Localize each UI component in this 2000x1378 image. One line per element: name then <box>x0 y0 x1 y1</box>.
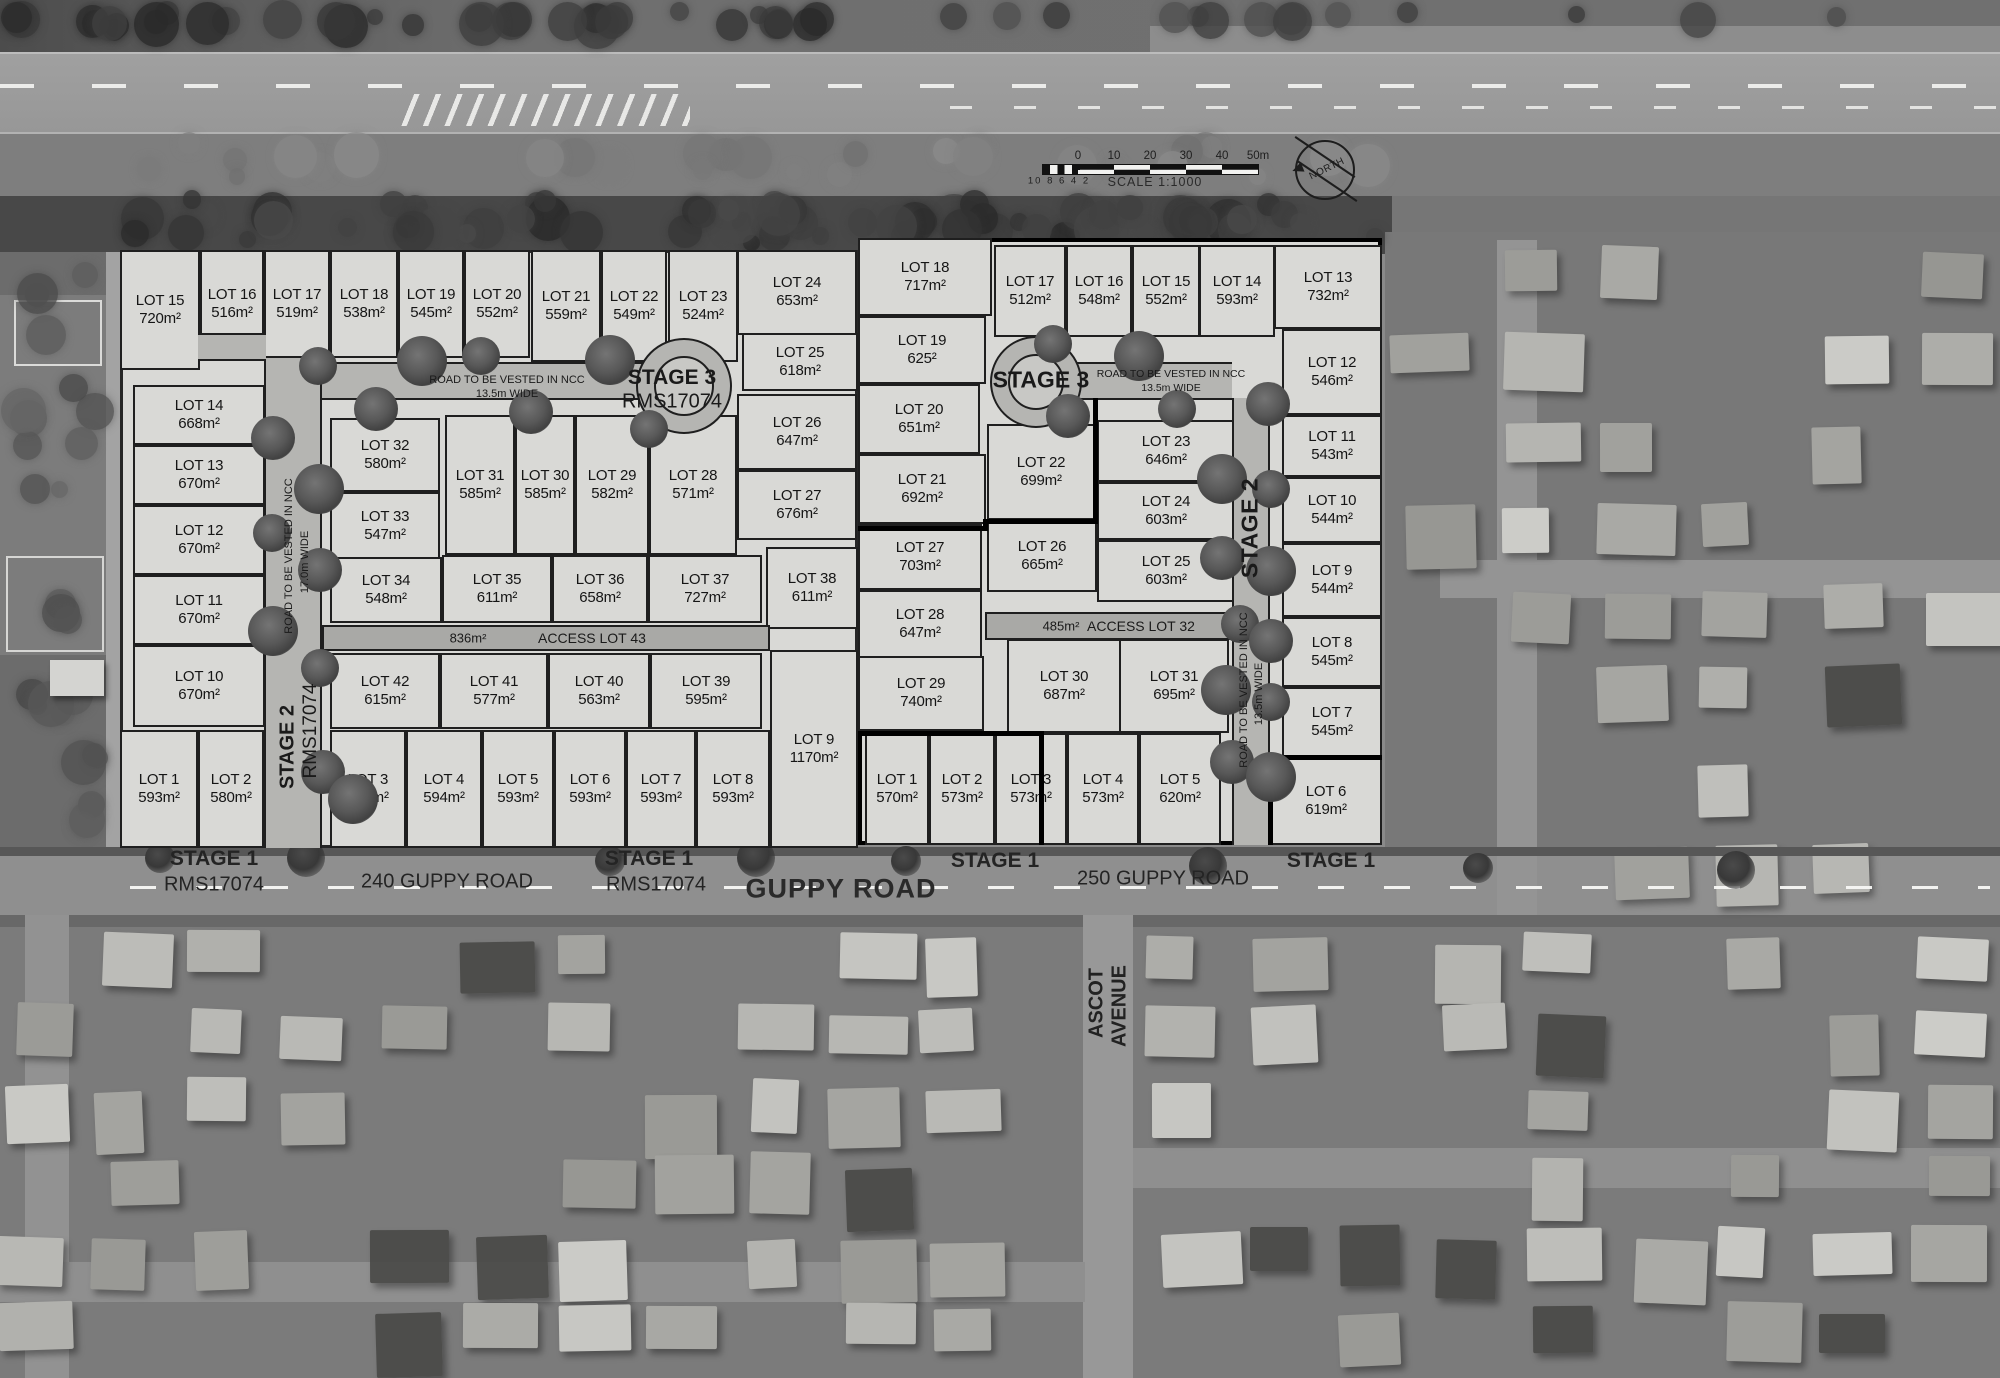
stage-boundary-seg <box>858 526 988 531</box>
stage3-label-250: STAGE 3 <box>993 367 1090 394</box>
lot-240-40: LOT 40563m² <box>548 653 650 729</box>
lot-label: LOT 14668m² <box>175 397 224 434</box>
scale-tick-20: 20 <box>1144 150 1157 162</box>
lot-label: LOT 27676m² <box>773 487 822 524</box>
aerial-house <box>1600 245 1659 300</box>
lot-label: LOT 17519m² <box>273 286 322 323</box>
aerial-house <box>1812 1232 1892 1276</box>
lot-label: LOT 28571m² <box>669 467 718 504</box>
lot-label: LOT 11543m² <box>1308 428 1355 465</box>
lot-250-29: LOT 29740m² <box>858 656 984 731</box>
vegetation <box>688 199 716 227</box>
lot-240-34: LOT 34548m² <box>330 557 442 623</box>
aerial-house <box>1435 1239 1497 1300</box>
vegetation <box>59 374 87 402</box>
lot-label: LOT 37727m² <box>681 571 730 608</box>
lot-label: LOT 23646m² <box>1142 433 1191 470</box>
aerial-house <box>1405 504 1476 569</box>
lot-250-14: LOT 14593m² <box>1199 245 1275 337</box>
street-tree <box>1034 325 1072 363</box>
stage-boundary-seg <box>985 519 1097 524</box>
aerial-house <box>1730 1155 1778 1198</box>
aerial-house <box>1502 508 1549 554</box>
scale-bar-minor <box>1042 164 1080 175</box>
lot-240-8: LOT 8593m² <box>696 730 770 848</box>
lot-label: LOT 30585m² <box>521 467 570 504</box>
aerial-house <box>1698 666 1747 708</box>
stage2-label-250: STAGE 2 <box>1237 478 1264 578</box>
aerial-house <box>1506 422 1581 462</box>
scale-tick-40: 40 <box>1216 150 1229 162</box>
aerial-house <box>1339 1225 1400 1287</box>
aerial-house <box>476 1235 549 1301</box>
aerial-house <box>1253 937 1330 992</box>
lot-label: LOT 39595m² <box>682 673 731 710</box>
aerial-house <box>929 1242 1005 1298</box>
lot-label: LOT 29740m² <box>897 675 946 712</box>
lot-240-12: LOT 12670m² <box>133 505 265 575</box>
vegetation <box>134 2 179 47</box>
lot-240-39: LOT 39595m² <box>650 653 762 729</box>
vegetation <box>670 2 689 21</box>
aerial-house <box>1526 1227 1601 1281</box>
aerial-house <box>828 1087 902 1149</box>
road-width-label-250: 13.5m WIDE <box>1141 382 1201 394</box>
aerial-house <box>1825 663 1902 727</box>
ascot-avenue-label-2: AVENUE <box>1109 965 1132 1047</box>
aerial-house <box>558 1240 628 1302</box>
lot-label: LOT 26665m² <box>1018 538 1067 575</box>
lot-label: LOT 42615m² <box>361 673 410 710</box>
lot-240-2: LOT 2580m² <box>198 730 264 848</box>
vegetation <box>1159 2 1190 33</box>
aerial-house <box>1634 1238 1709 1305</box>
lot-250-26: LOT 26665m² <box>987 520 1097 592</box>
vegetation <box>993 2 1021 30</box>
lot-label: LOT 19545m² <box>407 286 456 323</box>
aerial-house <box>1527 1090 1589 1131</box>
lot-240-14: LOT 14668m² <box>133 385 265 445</box>
vegetation <box>526 139 564 177</box>
road-vested-label-240: ROAD TO BE VESTED IN NCC <box>429 374 584 386</box>
aerial-house <box>0 1301 74 1351</box>
aerial-house <box>934 1309 991 1352</box>
lot-label: LOT 8545m² <box>1311 634 1353 671</box>
vegetation <box>274 135 317 178</box>
lot-label: LOT 11670m² <box>175 592 222 629</box>
highway-chevrons <box>398 94 690 126</box>
road-stub-240 <box>198 333 266 361</box>
lot-label: LOT 17512m² <box>1006 273 1055 310</box>
aerial-subdivision-plan: STAGE 3 RMS17074 ROAD TO BE VESTED IN NC… <box>0 0 2000 1378</box>
aerial-house <box>1145 1005 1216 1057</box>
lot-label: LOT 24653m² <box>773 274 822 311</box>
lot-250-3: LOT 3573m² <box>995 733 1067 845</box>
aerial-house <box>279 1016 343 1061</box>
aerial-house <box>1605 594 1672 640</box>
lot-250-2: LOT 2573m² <box>929 733 995 845</box>
verge-tree <box>1717 851 1755 889</box>
stage3-ref-240: RMS17074 <box>622 391 722 414</box>
lot-label: LOT 26647m² <box>773 414 822 451</box>
lot-label: LOT 13670m² <box>175 457 224 494</box>
lot-label: LOT 10544m² <box>1308 492 1357 529</box>
aerial-house <box>1826 1089 1899 1152</box>
lot-label: LOT 7593m² <box>640 771 682 808</box>
lot-250-17: LOT 17512m² <box>994 245 1066 337</box>
road-width-label-240: 13.5m WIDE <box>476 388 538 400</box>
aerial-house <box>548 1003 611 1052</box>
lot-250-4: LOT 4573m² <box>1067 733 1139 845</box>
clubhouse-roof <box>50 660 104 696</box>
lot-label: LOT 22699m² <box>1017 454 1066 491</box>
vegetation <box>69 802 105 838</box>
aerial-house <box>1511 592 1572 645</box>
vegetation <box>20 474 50 504</box>
aerial-house <box>654 1154 733 1213</box>
aerial-house <box>846 1303 916 1345</box>
lot-250-28: LOT 28647m² <box>858 590 982 658</box>
aerial-house <box>1701 501 1750 547</box>
aerial-house <box>1535 1013 1606 1078</box>
lot-label: LOT 12670m² <box>175 522 224 559</box>
vegetation <box>848 208 877 237</box>
address-250-label: 250 GUPPY ROAD <box>1077 868 1249 891</box>
lot-240-38: LOT 38611m² <box>766 547 858 629</box>
aerial-house <box>281 1093 346 1146</box>
vegetation <box>595 5 628 38</box>
vegetation <box>1568 6 1585 23</box>
vegetation <box>1273 2 1312 41</box>
stage-boundary-seg <box>858 731 1042 736</box>
aerial-house <box>1146 935 1194 979</box>
aerial-house <box>1726 937 1781 989</box>
lot-250-13: LOT 13732m² <box>1274 245 1382 329</box>
aerial-house <box>370 1230 449 1284</box>
ascot-avenue-label-1: ASCOT <box>1086 968 1109 1038</box>
lot-label: LOT 33547m² <box>361 508 410 545</box>
vegetation <box>393 211 435 253</box>
aerial-house <box>557 935 604 974</box>
vegetation <box>940 3 967 30</box>
aerial-house <box>1926 593 2000 646</box>
aerial-house <box>463 1302 538 1348</box>
lot-label: LOT 20651m² <box>895 401 944 438</box>
vegetation <box>560 211 603 254</box>
lot-label: LOT 34548m² <box>362 572 411 609</box>
vegetation <box>843 141 868 166</box>
vegetation <box>718 199 739 220</box>
vroad-vested-label-240: ROAD TO BE VESTED IN NCC <box>283 478 295 633</box>
guppy-road-label: GUPPY ROAD <box>745 874 936 905</box>
aerial-house <box>1599 423 1651 472</box>
access43-area: 836m² <box>450 631 487 646</box>
aerial-house <box>646 1305 717 1349</box>
vegetation <box>757 193 799 235</box>
aerial-house <box>559 1304 632 1351</box>
aerial-house <box>1726 1301 1803 1363</box>
lot-240-42: LOT 42615m² <box>330 653 440 729</box>
lot-label: LOT 31585m² <box>456 467 505 504</box>
lot-240-18: LOT 18538m² <box>330 250 398 358</box>
lot-label: LOT 35611m² <box>473 571 522 608</box>
aerial-house <box>1819 1314 1885 1353</box>
aerial-house <box>194 1230 249 1291</box>
vegetation <box>54 606 83 635</box>
aerial-house <box>460 942 536 994</box>
aerial-house <box>1338 1313 1402 1368</box>
aerial-house <box>17 1002 75 1057</box>
vegetation <box>459 2 503 46</box>
scale-bar-main <box>1078 164 1259 175</box>
lot-label: LOT 21559m² <box>542 288 591 325</box>
lot-label: LOT 31695m² <box>1150 668 1199 705</box>
vegetation <box>1 2 32 33</box>
stage2-label-240: STAGE 2 <box>277 705 300 789</box>
lot-label: LOT 18538m² <box>340 286 389 323</box>
lot-250-10: LOT 10544m² <box>1282 477 1382 543</box>
lot-label: LOT 40563m² <box>575 673 624 710</box>
aerial-house <box>1505 250 1558 291</box>
aerial-house <box>1503 331 1585 392</box>
aerial-house <box>1928 1085 1993 1140</box>
aerial-house <box>1921 251 1983 298</box>
vegetation <box>1227 205 1256 234</box>
north-arrow: NORTH <box>1295 140 1355 200</box>
stage1-ref-west: RMS17074 <box>164 874 264 897</box>
lot-250-11: LOT 11543m² <box>1282 415 1382 477</box>
vegetation <box>1089 200 1118 229</box>
access43-label: ACCESS LOT 43 <box>538 630 646 646</box>
access32-label: ACCESS LOT 32 <box>1087 618 1195 634</box>
vegetation <box>592 149 626 183</box>
aerial-house <box>840 1240 917 1304</box>
lot-250-20: LOT 20651m² <box>858 384 980 454</box>
lot-250-30: LOT 30687m² <box>1007 639 1122 733</box>
lot-label: LOT 12546m² <box>1308 354 1357 391</box>
aerial-house <box>1811 426 1861 484</box>
lot-label: LOT 91170m² <box>790 731 839 768</box>
street-tree <box>630 410 668 448</box>
lot-label: LOT 25603m² <box>1142 553 1191 590</box>
street-tree <box>301 649 339 687</box>
vegetation <box>1192 2 1228 38</box>
lot-240-5: LOT 5593m² <box>482 730 554 848</box>
aerial-house <box>840 932 918 979</box>
vegetation <box>168 215 204 251</box>
stage1-banner-east-a: STAGE 1 <box>951 849 1039 873</box>
vegetation <box>402 14 423 35</box>
lot-240-17: LOT 17519m² <box>264 250 330 358</box>
stage2-ref-240: RMS17074 <box>300 683 322 778</box>
street-tree <box>1158 390 1196 428</box>
vegetation <box>183 190 201 208</box>
lot-label: LOT 16516m² <box>208 286 257 323</box>
lot-240-1: LOT 1593m² <box>120 730 198 848</box>
lot-label: LOT 6619m² <box>1305 783 1347 820</box>
vegetation <box>1397 2 1418 23</box>
lot-label: LOT 14593m² <box>1213 273 1262 310</box>
vegetation <box>137 157 161 181</box>
vegetation <box>178 132 200 154</box>
aerial-house <box>925 938 978 998</box>
vegetation <box>121 220 148 247</box>
lot-label: LOT 3573m² <box>1010 771 1052 808</box>
lot-label: LOT 2580m² <box>210 771 252 808</box>
lot-label: LOT 30687m² <box>1040 668 1089 705</box>
lot-label: LOT 32580m² <box>361 437 410 474</box>
stage-boundary-seg <box>1093 398 1098 524</box>
aerial-house <box>1250 1227 1308 1270</box>
verge-tree <box>891 846 921 876</box>
stage-boundary-seg <box>1039 731 1044 845</box>
lot-label: LOT 22549m² <box>610 288 659 325</box>
aerial-house <box>91 1238 146 1290</box>
aerial-house <box>93 1091 144 1155</box>
lot-label: LOT 24603m² <box>1142 493 1191 530</box>
vroad-width-label-240: 17.0m WIDE <box>299 531 311 593</box>
vegetation <box>548 2 586 40</box>
lot-label: LOT 38611m² <box>788 570 837 607</box>
lot-label: LOT 7545m² <box>1311 704 1353 741</box>
vegetation <box>51 481 68 498</box>
aerial-house <box>187 929 261 972</box>
access32-area: 485m² <box>1043 619 1080 634</box>
lot-label: LOT 19625² <box>898 332 947 369</box>
road-vested-label-250: ROAD TO BE VESTED IN NCC <box>1097 368 1245 380</box>
lot-label: LOT 15552m² <box>1142 273 1191 310</box>
vegetation <box>317 2 355 40</box>
lot-label: LOT 5620m² <box>1159 771 1201 808</box>
vegetation <box>729 136 772 179</box>
aerial-house <box>645 1095 717 1159</box>
lot-label: LOT 10670m² <box>175 668 224 705</box>
scale-tick-10: 10 <box>1108 150 1121 162</box>
aerial-house <box>1596 503 1677 556</box>
lot-label: LOT 27703m² <box>896 539 945 576</box>
lot-240-15: LOT 15720m² <box>120 250 200 370</box>
aerial-house <box>1825 336 1890 385</box>
vroad-width-label-250: 13.5m WIDE <box>1253 663 1265 725</box>
vegetation <box>239 231 256 248</box>
aerial-house <box>1250 1005 1318 1066</box>
lot-label: LOT 9544m² <box>1311 562 1353 599</box>
vegetation <box>1 388 46 433</box>
stage1-banner-west: STAGE 1 <box>170 847 258 871</box>
aerial-house <box>1532 1158 1583 1222</box>
aerial-house <box>1523 931 1593 973</box>
aerial-house <box>1442 1002 1507 1051</box>
lot-240-25: LOT 25618m² <box>742 333 858 391</box>
lot-240-10: LOT 10670m² <box>133 645 265 727</box>
lot-label: LOT 29582m² <box>588 467 637 504</box>
scale-caption: SCALE 1:1000 <box>1108 175 1203 189</box>
aerial-house <box>1698 764 1750 818</box>
lot-250-1: LOT 1570m² <box>865 733 929 845</box>
lot-250-5: LOT 5620m² <box>1139 733 1221 845</box>
aerial-house <box>918 1008 974 1054</box>
lot-label: LOT 15720m² <box>136 292 185 329</box>
vegetation <box>334 132 379 177</box>
vegetation <box>953 137 992 176</box>
aerial-house <box>738 1004 815 1051</box>
aerial-house <box>1715 1226 1765 1278</box>
lot-label: LOT 18717m² <box>901 259 950 296</box>
lot-250-19: LOT 19625² <box>858 316 986 384</box>
vegetation <box>186 2 229 45</box>
vegetation <box>507 205 535 233</box>
lot-label: LOT 1593m² <box>138 771 180 808</box>
lot-label: LOT 2573m² <box>941 771 983 808</box>
lot-240-35: LOT 35611m² <box>442 555 552 623</box>
scale-tick-30: 30 <box>1180 150 1193 162</box>
aerial-house <box>4 1084 69 1144</box>
lot-250-8: LOT 8545m² <box>1282 617 1382 687</box>
west-track <box>106 252 120 856</box>
lot-label: LOT 1570m² <box>876 771 918 808</box>
lot-label: LOT 21692m² <box>898 471 947 508</box>
lot-label: LOT 13732m² <box>1304 269 1353 306</box>
aerial-house <box>925 1089 1002 1133</box>
lot-250-21: LOT 21692m² <box>858 454 986 524</box>
scale-tick-0: 0 <box>1075 150 1081 162</box>
stage1-ref-mid: RMS17074 <box>606 874 706 897</box>
aerial-house <box>747 1239 798 1290</box>
aerial-house <box>375 1312 443 1378</box>
address-240-label: 240 GUPPY ROAD <box>361 871 533 894</box>
aerial-house <box>1160 1231 1242 1288</box>
lot-label: LOT 41577m² <box>470 673 519 710</box>
lot-240-6: LOT 6593m² <box>554 730 626 848</box>
vegetation <box>1827 7 1847 27</box>
aerial-house <box>101 931 173 987</box>
aerial-house <box>1701 591 1768 638</box>
lot-240-32: LOT 32580m² <box>330 418 440 492</box>
lot-label: LOT 4594m² <box>423 771 465 808</box>
aerial-house <box>1533 1306 1594 1353</box>
street-tree <box>299 347 337 385</box>
lot-label: LOT 5593m² <box>497 771 539 808</box>
lot-240-33: LOT 33547m² <box>330 492 440 560</box>
lot-label: LOT 20552m² <box>473 286 522 323</box>
stage3-label-240: STAGE 3 <box>628 366 716 390</box>
aerial-house <box>828 1016 908 1056</box>
vegetation <box>229 168 246 185</box>
aerial-house <box>844 1167 914 1231</box>
lot-label: LOT 23524m² <box>679 288 728 325</box>
highway <box>0 52 2000 134</box>
vegetation <box>693 160 713 180</box>
aerial-house <box>1435 945 1502 1005</box>
lot-240-9: LOT 91170m² <box>770 650 858 848</box>
street-tree <box>1246 752 1296 802</box>
aerial-house <box>1152 1083 1211 1138</box>
street-tree <box>328 774 378 824</box>
aerial-house <box>1922 332 1994 384</box>
aerial-house <box>191 1008 243 1054</box>
lot-240-13: LOT 13670m² <box>133 445 265 505</box>
aerial-house <box>1929 1156 1990 1196</box>
vegetation <box>716 9 748 41</box>
street-tree <box>251 416 295 460</box>
aerial-house <box>0 1236 64 1287</box>
lot-240-41: LOT 41577m² <box>440 653 548 729</box>
highway-centerline <box>0 84 2000 88</box>
lot-label: LOT 28647m² <box>896 606 945 643</box>
street-tree <box>462 337 500 375</box>
stage1-banner-east-b: STAGE 1 <box>1287 849 1375 873</box>
vegetation <box>254 201 293 240</box>
